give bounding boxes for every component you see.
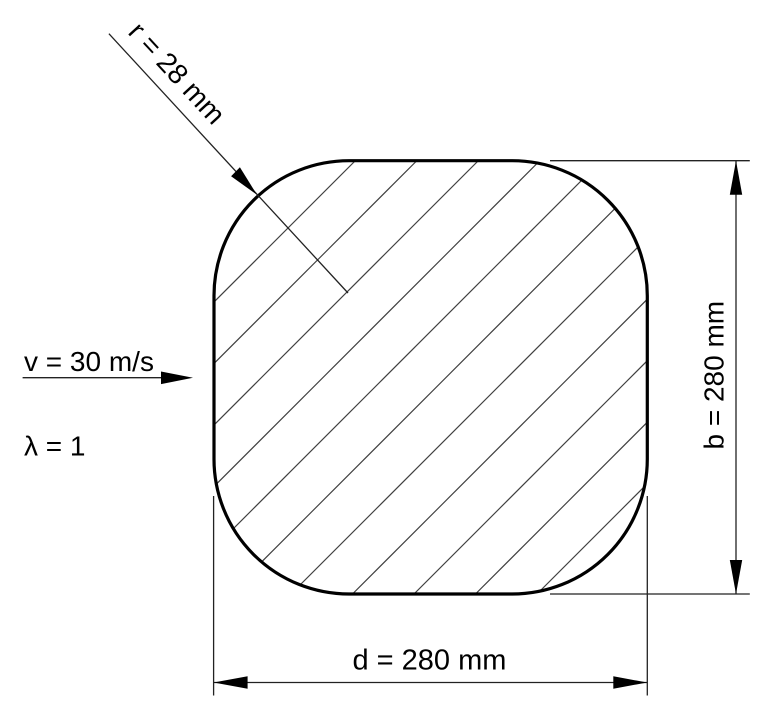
svg-text:d = 280 mm: d = 280 mm [353,645,507,677]
svg-text:λ = 1: λ = 1 [24,431,85,462]
svg-text:b = 280 mm: b = 280 mm [699,301,730,450]
svg-text:v = 30 m/s: v = 30 m/s [24,346,154,377]
